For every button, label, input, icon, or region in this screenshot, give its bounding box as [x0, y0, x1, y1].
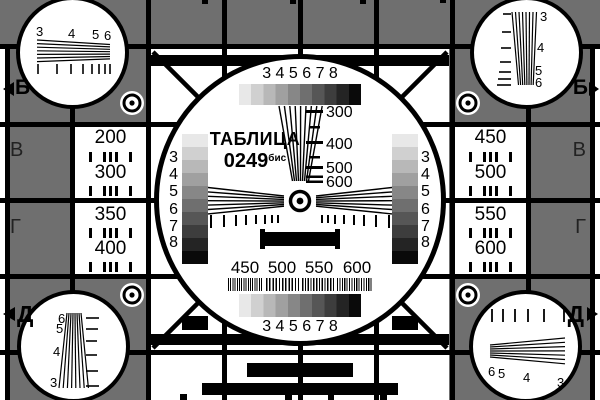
top-edge-cut-mark-2 — [290, 0, 296, 4]
corner-br-label-3: 3 — [557, 376, 564, 389]
row-marker-right-b: Б — [568, 77, 588, 98]
center-under-wedge-ticks — [210, 215, 390, 228]
corner-br-label-6: 6 — [488, 365, 495, 378]
right-staircase-label-4: 4 — [421, 167, 430, 183]
top-edge-cut-mark-4 — [440, 0, 446, 3]
row-marker-left-g: Г — [10, 217, 21, 237]
panel-right-450: 450 — [455, 128, 526, 147]
center-black-bar-cap-right — [335, 229, 340, 249]
bottom-left-wedge-ticks — [86, 318, 99, 386]
burst-label-500: 500 — [262, 259, 302, 276]
wedge-label-400: 400 — [326, 137, 353, 153]
burst-label-450: 450 — [225, 259, 265, 276]
row-marker-right-g: Г — [566, 217, 586, 237]
center-right-horizontal-wedge — [316, 188, 392, 214]
panel-right-ticks-2 — [455, 186, 526, 196]
pattern-detail-layer — [0, 0, 600, 400]
left-staircase-label-3: 3 — [158, 150, 178, 166]
bullseye-target-bottom-left — [120, 283, 144, 307]
top-left-resolution-wedge — [37, 40, 110, 62]
top-grayscale-scale-labels: 3 4 5 6 7 8 — [240, 66, 360, 82]
top-left-wedge-ticks — [38, 64, 110, 74]
panel-left-ticks-4 — [75, 262, 146, 272]
center-left-horizontal-wedge — [208, 188, 284, 214]
corner-tl-label-5: 5 — [92, 28, 99, 41]
arrow-left-b-icon — [3, 82, 14, 96]
corner-tl-label-4: 4 — [68, 27, 75, 40]
left-staircase-label-6: 6 — [158, 202, 178, 218]
left-staircase-label-5: 5 — [158, 184, 178, 200]
arrow-right-d-icon — [587, 307, 598, 321]
left-staircase-label-8: 8 — [158, 235, 178, 251]
corner-tr-label-3: 3 — [540, 10, 547, 23]
top-edge-cut-mark-1 — [202, 0, 208, 4]
corner-tl-label-3: 3 — [36, 25, 43, 38]
row-marker-right-d: Д — [562, 303, 584, 326]
panel-left-300: 300 — [75, 163, 146, 182]
corner-tr-label-4: 4 — [537, 41, 544, 54]
panel-left-400: 400 — [75, 239, 146, 258]
panel-right-550: 550 — [455, 205, 526, 224]
row-marker-left-b: Б — [15, 77, 30, 98]
corner-tl-label-6: 6 — [104, 29, 111, 42]
bottom-right-wedge-ticks — [492, 309, 564, 322]
bottom-right-resolution-wedge — [490, 338, 565, 364]
corner-br-label-5: 5 — [498, 367, 505, 380]
top-right-wedge-ticks — [497, 14, 511, 85]
center-black-bar — [264, 232, 336, 246]
corner-br-label-4: 4 — [523, 371, 530, 384]
panel-right-ticks-4 — [455, 262, 526, 272]
bullseye-target-center — [286, 187, 314, 215]
corner-bl-label-3: 3 — [50, 376, 57, 389]
right-staircase-label-3: 3 — [421, 150, 430, 166]
card-code-suffix: бис — [268, 153, 286, 164]
panel-left-350: 350 — [75, 205, 146, 224]
right-staircase-label-5: 5 — [421, 184, 430, 200]
right-black-square — [392, 316, 418, 330]
panel-left-ticks-1 — [75, 152, 146, 162]
panel-right-600: 600 — [455, 239, 526, 258]
bullseye-target-top-left — [120, 91, 144, 115]
panel-left-200: 200 — [75, 128, 146, 147]
top-right-resolution-wedge — [512, 12, 537, 85]
wedge-label-300: 300 — [326, 105, 353, 121]
right-staircase-label-7: 7 — [421, 219, 430, 235]
row-marker-left-d: Д — [17, 303, 33, 326]
bottom-edge-cut-mark-3 — [328, 394, 334, 400]
left-staircase-label-7: 7 — [158, 219, 178, 235]
arrow-left-d-icon — [3, 307, 15, 321]
bottom-edge-cut-mark-1 — [180, 394, 187, 400]
corner-bl-label-5: 5 — [56, 322, 63, 335]
left-black-square — [182, 316, 208, 330]
bottom-black-bar-short — [247, 363, 353, 377]
burst-label-600: 600 — [337, 259, 377, 276]
bottom-edge-cut-mark-4 — [380, 394, 387, 400]
test-card-0249: 3 4 5 6 7 8 3 4 5 6 7 8 300 400 500 600 … — [0, 0, 600, 400]
panel-right-500: 500 — [455, 163, 526, 182]
card-title: ТАБЛИЦА — [203, 130, 307, 148]
bullseye-target-bottom-right — [456, 283, 480, 307]
bottom-edge-cut-mark-2 — [285, 394, 292, 400]
bottom-grayscale-scale-labels: 3 4 5 6 7 8 — [240, 319, 360, 335]
bullseye-target-top-right — [456, 91, 480, 115]
burst-label-550: 550 — [299, 259, 339, 276]
right-staircase-label-6: 6 — [421, 202, 430, 218]
arrow-right-b-icon — [589, 82, 599, 96]
card-code-number: 0249 — [224, 150, 269, 172]
panel-left-ticks-2 — [75, 186, 146, 196]
center-black-bar-cap-left — [260, 229, 265, 249]
row-marker-left-v: В — [10, 140, 23, 160]
row-marker-right-v: В — [566, 140, 586, 160]
bottom-black-bar-long — [202, 383, 398, 395]
top-edge-cut-mark-3 — [360, 0, 366, 4]
panel-right-ticks-3 — [455, 228, 526, 238]
right-staircase-label-8: 8 — [421, 235, 430, 251]
corner-tr-label-6: 6 — [535, 76, 542, 89]
panel-left-ticks-3 — [75, 228, 146, 238]
corner-bl-label-4: 4 — [53, 345, 60, 358]
panel-right-ticks-1 — [455, 152, 526, 162]
left-staircase-label-4: 4 — [158, 167, 178, 183]
wedge-label-600: 600 — [326, 175, 353, 191]
card-code: 0249бис — [203, 151, 307, 171]
